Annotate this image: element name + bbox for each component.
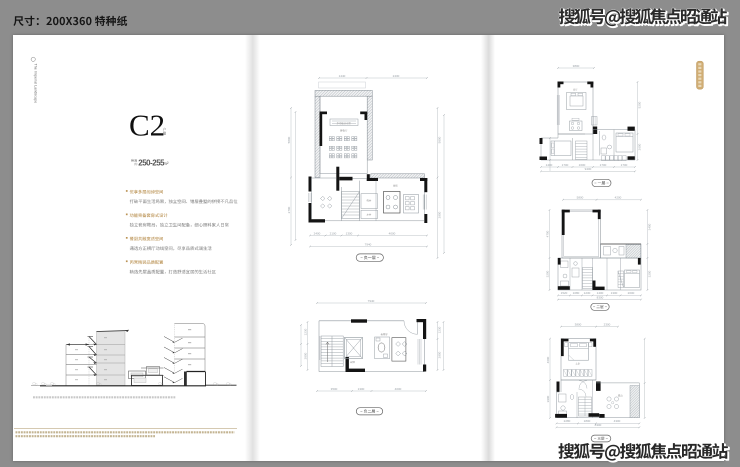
- svg-text:1230: 1230: [438, 326, 442, 333]
- svg-text:7940: 7940: [368, 299, 375, 303]
- svg-text:7940: 7940: [365, 242, 372, 246]
- svg-text:1700: 1700: [621, 163, 628, 167]
- svg-text:2800: 2800: [303, 352, 307, 359]
- svg-text:5200: 5200: [638, 101, 642, 108]
- svg-text:1440: 1440: [339, 74, 346, 78]
- svg-text:4300: 4300: [614, 419, 621, 423]
- svg-text:2300: 2300: [604, 323, 611, 327]
- svg-text:5800: 5800: [577, 196, 584, 200]
- svg-text:1230: 1230: [303, 328, 307, 335]
- svg-text:3500: 3500: [331, 387, 338, 391]
- svg-text:5800: 5800: [438, 136, 442, 143]
- svg-text:3900: 3900: [546, 395, 550, 402]
- svg-text:3200: 3200: [545, 270, 549, 277]
- svg-text:2900: 2900: [438, 211, 442, 218]
- svg-text:1300: 1300: [358, 387, 365, 391]
- svg-text:m²: m²: [163, 161, 169, 166]
- svg-text:1230: 1230: [584, 291, 591, 295]
- svg-text:1400: 1400: [546, 163, 553, 167]
- svg-text:1520: 1520: [561, 291, 568, 295]
- svg-text:3800: 3800: [575, 323, 582, 327]
- svg-text:1800: 1800: [584, 419, 591, 423]
- svg-text:1300: 1300: [346, 231, 353, 235]
- svg-text:The Imperial Landscape: The Imperial Landscape: [34, 64, 38, 104]
- svg-text:5800: 5800: [287, 136, 291, 143]
- svg-text:C2: C2: [129, 108, 165, 143]
- svg-text:3200: 3200: [648, 270, 652, 277]
- svg-text:2280: 2280: [564, 419, 571, 423]
- svg-text:2700: 2700: [287, 206, 291, 213]
- svg-text:2900: 2900: [438, 351, 442, 358]
- svg-text:1300: 1300: [611, 291, 618, 295]
- svg-text:8300: 8300: [597, 295, 604, 299]
- svg-text:3800: 3800: [573, 64, 580, 68]
- svg-text:1700: 1700: [562, 163, 569, 167]
- svg-text:1700: 1700: [600, 163, 607, 167]
- svg-text:8300: 8300: [595, 423, 602, 427]
- svg-text:3400: 3400: [648, 223, 652, 230]
- svg-text:1080: 1080: [573, 291, 580, 295]
- svg-text:4000: 4000: [395, 387, 402, 391]
- svg-text:4700: 4700: [545, 230, 549, 237]
- svg-text:2430: 2430: [393, 74, 400, 78]
- svg-text:2100: 2100: [330, 231, 337, 235]
- svg-text:2600: 2600: [638, 143, 642, 150]
- svg-text:4600: 4600: [546, 356, 550, 363]
- svg-text:2000: 2000: [628, 291, 635, 295]
- svg-text:9400: 9400: [585, 167, 592, 171]
- svg-text:250-255: 250-255: [138, 158, 165, 167]
- svg-text:4200: 4200: [615, 196, 622, 200]
- svg-text:4000: 4000: [389, 231, 396, 235]
- svg-text:2400: 2400: [314, 231, 321, 235]
